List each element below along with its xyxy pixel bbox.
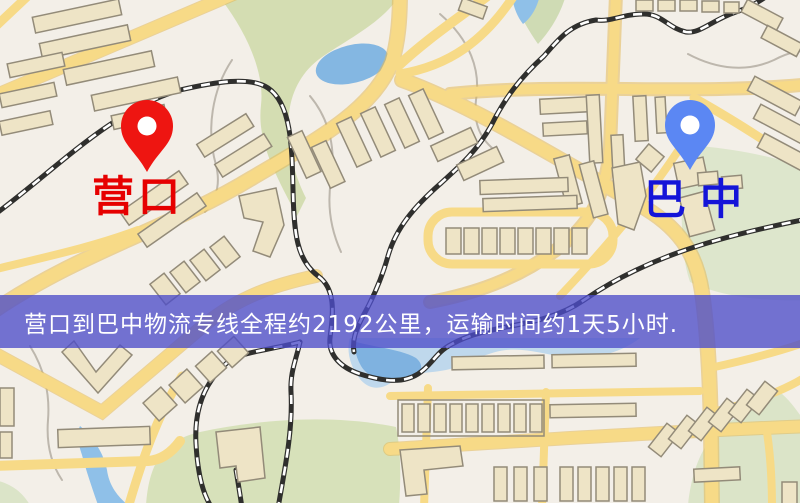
map-canvas[interactable]: [0, 0, 800, 503]
route-info-text: 营口到巴中物流专线全程约2192公里，运输时间约1天5小时.: [24, 305, 678, 339]
destination-pin-hole: [681, 116, 700, 135]
route-info-banner: 营口到巴中物流专线全程约2192公里，运输时间约1天5小时.: [0, 295, 800, 348]
origin-pin-hole: [138, 117, 157, 136]
map-screenshot: 营口 巴中 营口到巴中物流专线全程约2192公里，运输时间约1天5小时.: [0, 0, 800, 503]
